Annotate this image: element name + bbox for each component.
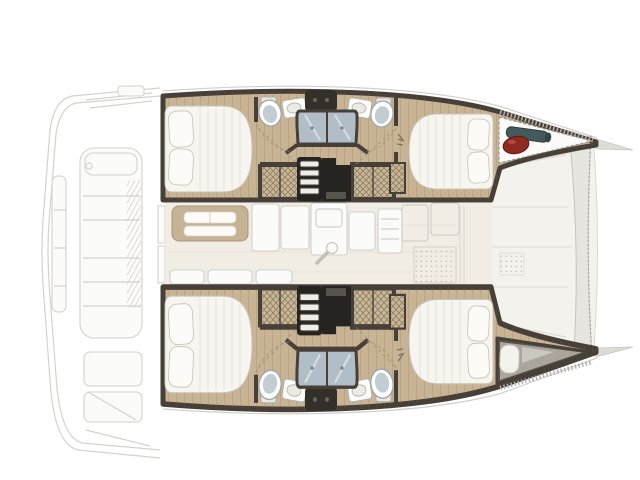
salon-door — [158, 246, 165, 283]
table-leaf — [184, 226, 236, 236]
cockpit-lounge-hatch — [127, 180, 141, 308]
catamaran-floor-plan: Catamaran yacht four-cabin interior deck… — [0, 0, 640, 480]
galley-unit — [281, 206, 309, 249]
aft-cockpit — [42, 86, 165, 458]
windlass-highlight — [508, 140, 516, 144]
port-bow-tip — [596, 139, 633, 150]
salon — [165, 203, 492, 287]
galley-unit — [349, 212, 375, 250]
starboard-bow-tip — [596, 347, 633, 357]
cockpit-locker — [84, 352, 142, 386]
dining-table — [172, 206, 248, 241]
refrigerator — [378, 209, 402, 253]
berth-cushion — [500, 345, 520, 374]
aft-settee — [170, 270, 292, 284]
cockpit-bench-cushion — [85, 153, 137, 175]
foredeck-grate — [500, 253, 524, 275]
side-bench — [52, 176, 66, 312]
entry-mat — [414, 247, 456, 283]
cockpit-seating — [80, 148, 142, 338]
transom-locker — [118, 86, 144, 96]
galley-unit — [252, 204, 279, 251]
salon-door — [158, 206, 165, 243]
